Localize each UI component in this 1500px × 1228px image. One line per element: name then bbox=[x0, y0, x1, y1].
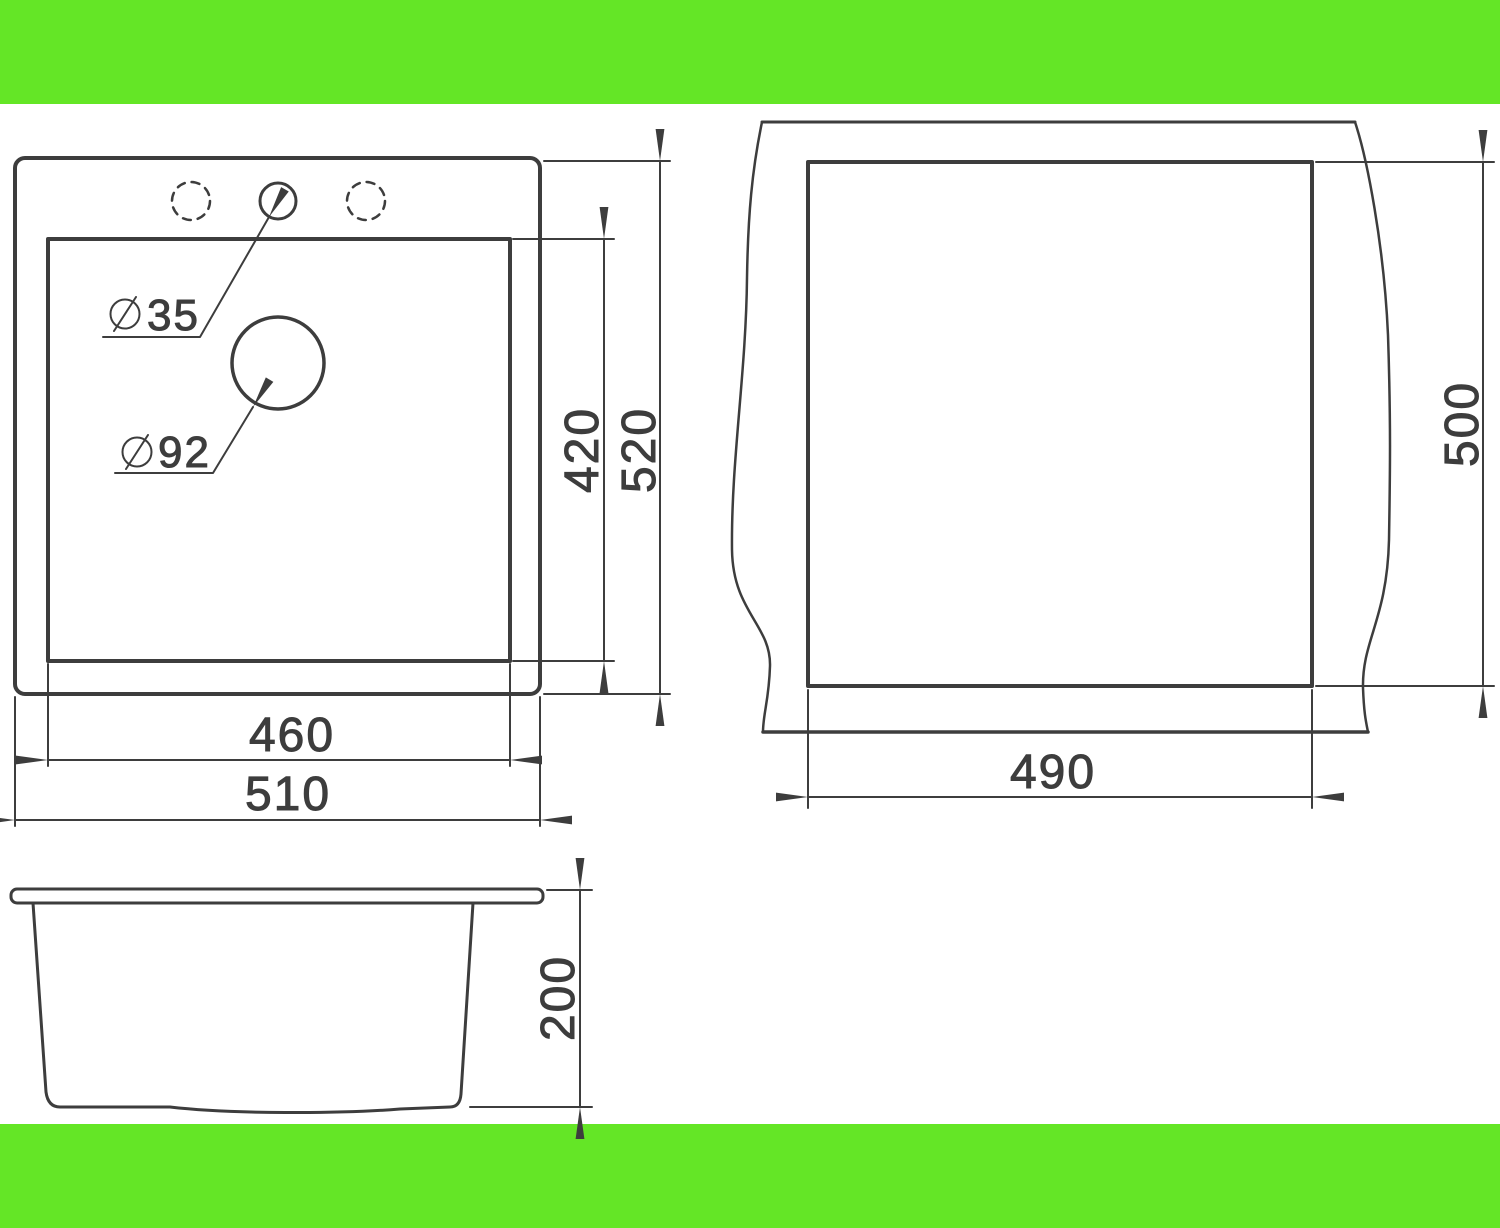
sink-rim-profile bbox=[11, 889, 543, 903]
countertop-right-break-line bbox=[1355, 122, 1390, 732]
sink-bowl-profile bbox=[33, 903, 473, 1113]
dimension-label-420: 420 bbox=[556, 407, 609, 493]
top-green-bar bbox=[0, 0, 1500, 104]
faucet-hole-callout: 35 bbox=[103, 217, 269, 340]
optional-hole-right bbox=[347, 182, 385, 220]
bottom-green-bar bbox=[0, 1124, 1500, 1228]
drawing-canvas: 35 92 420 520 bbox=[0, 0, 1500, 1228]
side-view: 200 bbox=[11, 889, 592, 1113]
top-view: 35 92 420 520 bbox=[15, 158, 670, 826]
dimension-500: 500 bbox=[1316, 162, 1494, 686]
cutout-view: 490 500 bbox=[732, 122, 1494, 808]
countertop-left-break-line bbox=[732, 122, 770, 732]
dimension-460: 460 bbox=[48, 664, 510, 766]
diameter-symbol-icon bbox=[123, 435, 152, 469]
faucet-hole-diameter-label: 35 bbox=[147, 291, 200, 340]
drain-hole bbox=[232, 317, 324, 409]
dimension-label-490: 490 bbox=[1010, 746, 1096, 799]
diameter-symbol-icon bbox=[111, 297, 140, 331]
dimension-label-200: 200 bbox=[532, 955, 585, 1041]
faucet-hole bbox=[260, 183, 296, 219]
dimension-label-460: 460 bbox=[249, 709, 335, 762]
dimension-490: 490 bbox=[808, 690, 1312, 808]
dimension-420: 420 bbox=[513, 239, 614, 661]
drain-hole-diameter-label: 92 bbox=[158, 428, 211, 477]
drain-hole-callout: 92 bbox=[115, 407, 253, 477]
dimension-label-520: 520 bbox=[613, 407, 666, 493]
dimension-200: 200 bbox=[470, 890, 592, 1107]
dimension-label-510: 510 bbox=[245, 768, 331, 821]
cutout-outline bbox=[808, 162, 1312, 686]
optional-hole-left bbox=[172, 182, 210, 220]
dimension-label-500: 500 bbox=[1436, 381, 1489, 467]
